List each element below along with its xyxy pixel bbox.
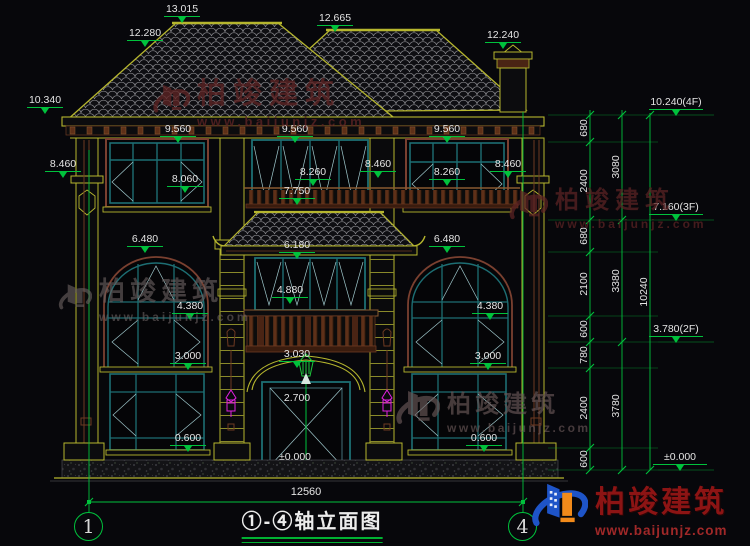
elevation-label: 8.060 (167, 174, 203, 193)
baijun-logo-icon (54, 277, 92, 319)
baijun-logo-icon (504, 182, 548, 230)
elevation-label: 6.480 (429, 234, 465, 253)
elevation-label: 7.750 (279, 186, 315, 205)
elevation-label: ±0.000 (653, 452, 707, 471)
elevation-label: 13.015 (164, 4, 200, 23)
elevation-label: 2.700 (284, 393, 310, 404)
elevation-label: 8.260 (429, 167, 465, 186)
elevation-label: 12.280 (127, 28, 163, 47)
footer-url: www.baijunjz.com (595, 523, 728, 538)
dimension-text: 3780 (610, 394, 622, 417)
watermark: 柏竣建筑 www.baijunjz.com (390, 381, 591, 437)
watermark-url: www.baijunjz.com (197, 114, 365, 129)
elevation-label: 0.600 (170, 433, 206, 452)
elevation-label: 9.560 (429, 124, 465, 143)
elevation-label: 8.460 (490, 159, 526, 178)
footer-brand: 柏竣建筑 (595, 477, 728, 521)
watermark: 柏竣建筑 www.baijunjz.com (504, 180, 707, 231)
elevation-label: 6.480 (127, 234, 163, 253)
dimension-text: 600 (578, 320, 590, 338)
elevation-label: 8.460 (360, 159, 396, 178)
watermark-brand: 柏竣建筑 (99, 271, 251, 308)
dimension-text: 3380 (610, 269, 622, 292)
dimension-text: 3080 (610, 155, 622, 178)
dimension-text: 780 (578, 346, 590, 364)
watermark-brand: 柏竣建筑 (197, 70, 365, 112)
elevation-label: 12.665 (317, 13, 353, 32)
elevation-label: 3.000 (470, 351, 506, 370)
baijun-logo-icon (390, 381, 440, 437)
elevation-label: 12.240 (485, 30, 521, 49)
watermark: 柏竣建筑 www.baijunjz.com (148, 70, 365, 129)
elevation-label: 3.030 (279, 349, 315, 368)
watermark-brand: 柏竣建筑 (555, 180, 707, 215)
elevation-label: 3.000 (170, 351, 206, 370)
elevation-label: 4.380 (472, 301, 508, 320)
chimney (494, 45, 532, 112)
footer-logo: 柏竣建筑 www.baijunjz.com (524, 476, 728, 538)
watermark-brand: 柏竣建筑 (447, 384, 591, 419)
axis-bubble-1: 1 (74, 512, 103, 541)
elevation-label: 4.880 (272, 285, 308, 304)
drawing-title: ①-④轴立面图 (242, 505, 383, 543)
baijun-logo-icon (148, 77, 190, 123)
watermark-url: www.baijunjz.com (447, 421, 591, 435)
elevation-label: 8.460 (45, 159, 81, 178)
dimension-text: 2100 (578, 272, 590, 295)
elevation-label: ±0.000 (279, 452, 311, 463)
watermark: 柏竣建筑 www.baijunjz.com (54, 271, 251, 324)
balcony-2f (244, 310, 378, 352)
drawing-title-text: ①-④轴立面图 (242, 511, 383, 533)
elevation-label: 10.340 (27, 95, 63, 114)
watermark-url: www.baijunjz.com (99, 310, 251, 324)
dimension-text: 10240 (638, 277, 650, 306)
elevation-label: 3.780(2F) (649, 324, 703, 343)
elevation-label: 8.260 (295, 167, 331, 186)
watermark-url: www.baijunjz.com (555, 217, 707, 231)
title-underline (242, 537, 383, 543)
dimension-text: 600 (578, 450, 590, 468)
elevation-label: 6.180 (279, 240, 315, 259)
baijun-logo-icon (524, 476, 588, 538)
cad-elevation-canvas: 13.01512.28012.66512.24010.3409.5609.560… (0, 0, 750, 546)
dimension-text: 680 (578, 119, 590, 137)
overall-width-dimension: 12560 (291, 486, 322, 498)
elevation-label: 10.240(4F) (649, 97, 703, 116)
